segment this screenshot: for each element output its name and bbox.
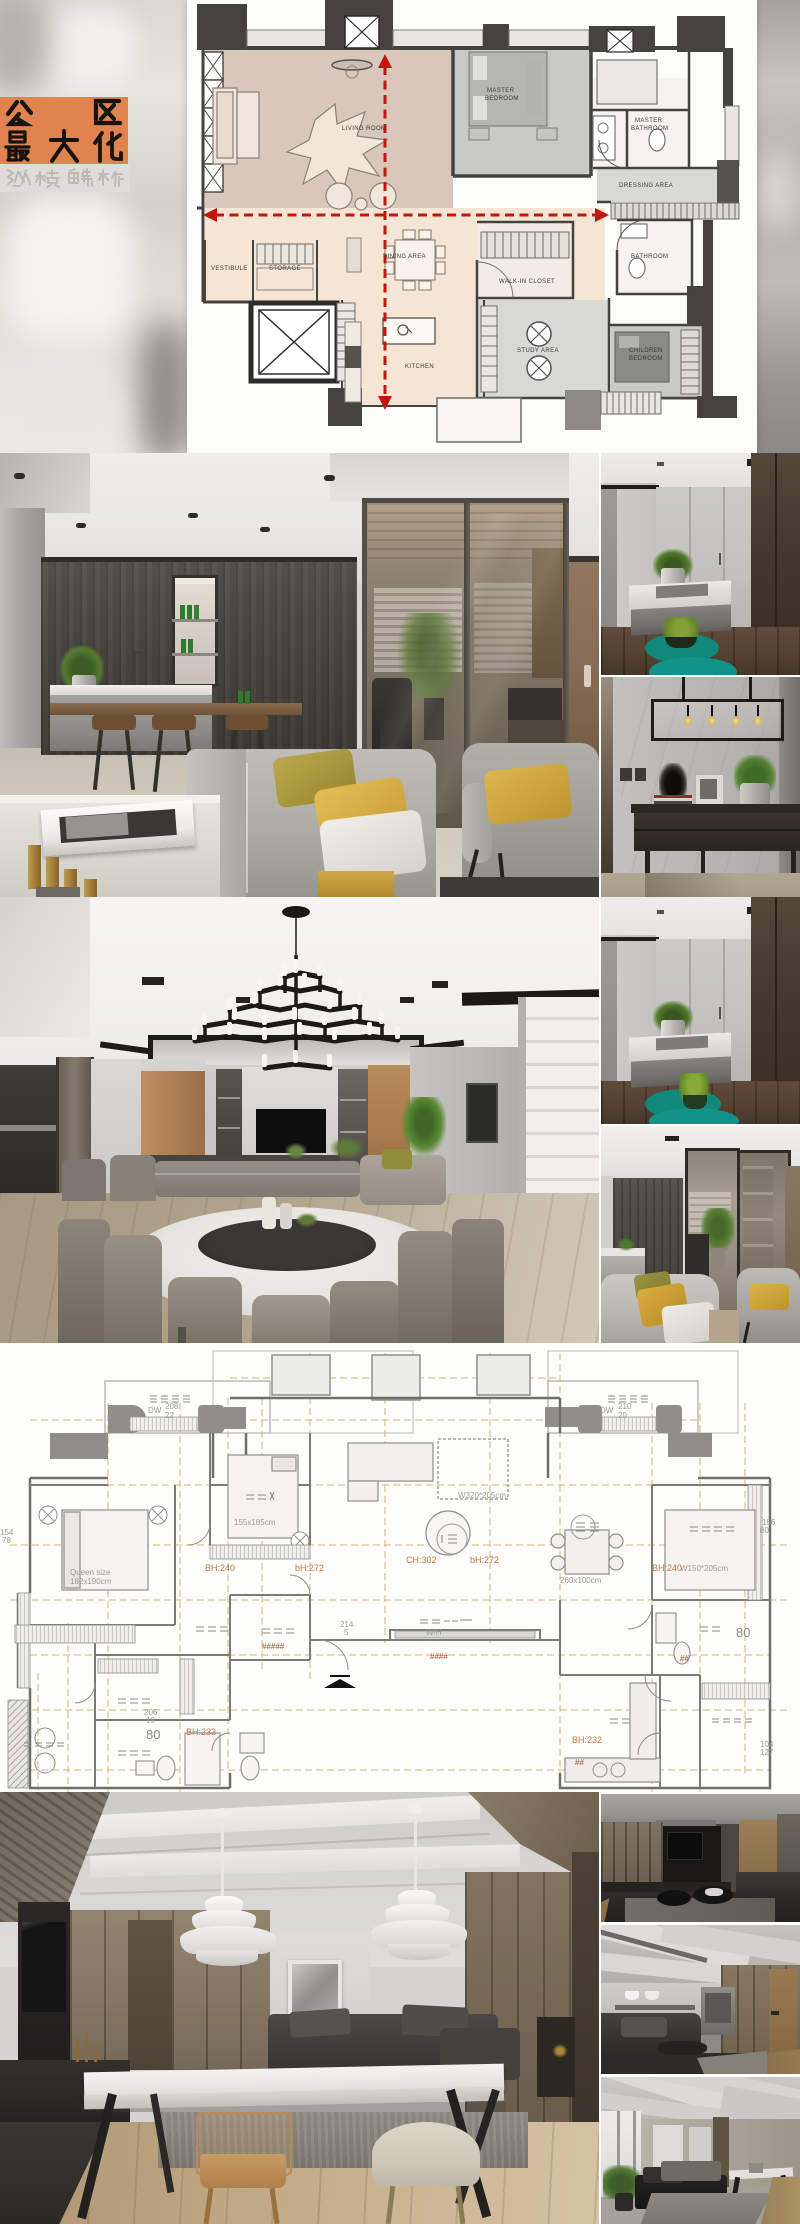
svg-text:80: 80 (146, 1727, 160, 1742)
svg-text:5: 5 (344, 1628, 349, 1637)
svg-text:W/H: W/H (426, 1628, 442, 1637)
svg-text:KITCHEN: KITCHEN (405, 364, 434, 370)
svg-text:CHILDREN: CHILDREN (629, 348, 663, 354)
svg-text:####: #### (430, 1652, 448, 1661)
svg-text:#####: ##### (262, 1642, 285, 1651)
svg-text:##: ## (575, 1758, 584, 1767)
svg-text:BEDROOM: BEDROOM (485, 96, 519, 102)
svg-text:Queen size: Queen size (70, 1568, 111, 1577)
svg-text:bH:272: bH:272 (295, 1563, 324, 1573)
svg-text:BATHROOM: BATHROOM (631, 254, 668, 260)
svg-text:W150*205cm: W150*205cm (680, 1564, 728, 1573)
svg-text:bH:272: bH:272 (470, 1555, 499, 1565)
svg-text:78: 78 (2, 1536, 11, 1545)
svg-text:##: ## (680, 1654, 689, 1663)
svg-text:BEDROOM: BEDROOM (629, 356, 663, 362)
svg-text:20: 20 (618, 1411, 627, 1420)
svg-text:VESTIBULE: VESTIBULE (211, 266, 248, 272)
svg-text:80: 80 (760, 1526, 769, 1535)
svg-text:19: 19 (146, 1716, 155, 1725)
svg-text:BH:232: BH:232 (572, 1735, 602, 1745)
svg-text:260x100cm: 260x100cm (560, 1576, 602, 1585)
svg-text:BH:240: BH:240 (205, 1563, 235, 1573)
svg-text:BH:233: BH:233 (186, 1727, 216, 1737)
svg-text:208: 208 (165, 1402, 179, 1411)
svg-text:127: 127 (760, 1748, 774, 1757)
svg-text:DINING AREA: DINING AREA (383, 254, 426, 260)
svg-text:182x190cm: 182x190cm (70, 1577, 112, 1586)
svg-text:MASTER: MASTER (487, 88, 515, 94)
svg-text:STUDY AREA: STUDY AREA (517, 348, 559, 354)
svg-text:210: 210 (618, 1402, 632, 1411)
svg-text:CH:302: CH:302 (406, 1555, 437, 1565)
svg-text:MASTER: MASTER (635, 118, 663, 124)
svg-text:BATHROOM: BATHROOM (631, 126, 668, 132)
svg-text:DW: DW (600, 1406, 614, 1415)
svg-text:LIVING ROOM: LIVING ROOM (342, 126, 386, 132)
svg-text:WALK-IN CLOSET: WALK-IN CLOSET (499, 279, 555, 285)
svg-text:80: 80 (736, 1625, 750, 1640)
svg-text:155x185cm: 155x185cm (234, 1518, 276, 1527)
svg-text:BH:240: BH:240 (652, 1563, 682, 1573)
svg-text:STORAGE: STORAGE (269, 266, 301, 272)
svg-text:W320*205cm: W320*205cm (458, 1491, 506, 1500)
svg-text:DW: DW (148, 1406, 162, 1415)
svg-text:22: 22 (165, 1411, 174, 1420)
svg-text:DRESSING AREA: DRESSING AREA (619, 183, 673, 189)
